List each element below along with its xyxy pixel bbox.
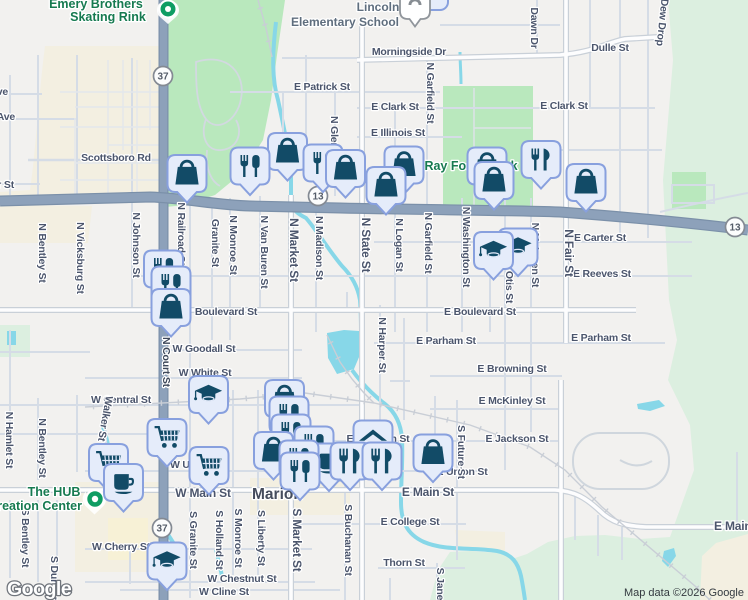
svg-text:Thorn St: Thorn St [383, 557, 425, 569]
svg-text:E Clark St: E Clark St [371, 101, 419, 113]
svg-text:Google: Google [7, 578, 72, 600]
svg-text:E Main St: E Main St [714, 519, 748, 533]
svg-text:Granite St: Granite St [209, 219, 221, 268]
svg-text:S Market St: S Market St [290, 508, 304, 571]
svg-text:Ave: Ave [0, 111, 15, 123]
svg-text:S Future St: S Future St [455, 425, 467, 480]
svg-text:E Clark St: E Clark St [540, 100, 588, 112]
svg-text:N Market St: N Market St [287, 218, 301, 282]
svg-text:N Monroe St: N Monroe St [227, 215, 239, 275]
svg-text:S Janet St: S Janet St [434, 568, 446, 600]
svg-text:E Carter St: E Carter St [574, 232, 627, 244]
svg-text:N Garfield St: N Garfield St [422, 213, 434, 275]
svg-text:W Central St: W Central St [91, 394, 152, 406]
svg-text:Dawn Dr: Dawn Dr [528, 7, 540, 48]
svg-text:N Harper St: N Harper St [376, 317, 388, 373]
svg-text:Morningside Dr: Morningside Dr [372, 46, 446, 58]
svg-text:W Chestnut St: W Chestnut St [207, 573, 277, 585]
svg-text:S Holland St: S Holland St [213, 510, 225, 570]
svg-text:E Main St: E Main St [402, 485, 454, 499]
svg-text:W Cline St: W Cline St [199, 586, 250, 598]
svg-text:Dulle St: Dulle St [591, 42, 629, 54]
svg-text:E Patrick St: E Patrick St [294, 81, 351, 93]
svg-text:S Bentley St: S Bentley St [19, 509, 31, 569]
svg-text:Map data ©2026 Google: Map data ©2026 Google [624, 587, 744, 599]
svg-text:37: 37 [156, 524, 168, 535]
svg-text:N Washington St: N Washington St [460, 207, 472, 288]
svg-text:S Granite St: S Granite St [187, 511, 199, 569]
svg-text:N Garfield St: N Garfield St [424, 63, 436, 125]
svg-text:W Goodall St: W Goodall St [173, 343, 237, 355]
svg-text:S Monroe St: S Monroe St [232, 508, 244, 568]
svg-text:N Vicksburg St: N Vicksburg St [74, 222, 86, 294]
svg-text:N Fair St: N Fair St [562, 229, 576, 277]
svg-text:E Illinois St: E Illinois St [371, 127, 426, 139]
svg-text:13: 13 [729, 223, 741, 234]
svg-text:N Van Buren St: N Van Buren St [258, 215, 270, 289]
svg-text:The HUB: The HUB [28, 485, 81, 499]
svg-text:S Buchanan St: S Buchanan St [342, 504, 354, 576]
svg-text:Boulevard St: Boulevard St [195, 306, 258, 318]
svg-text:13: 13 [312, 192, 324, 203]
svg-text:r St: r St [0, 179, 15, 191]
svg-text:Scottsboro Rd: Scottsboro Rd [81, 152, 151, 164]
svg-text:N State St: N State St [359, 218, 373, 273]
svg-text:E Parham St: E Parham St [571, 332, 631, 344]
svg-text:N Hamlet St: N Hamlet St [3, 412, 15, 469]
svg-text:37: 37 [157, 72, 169, 83]
svg-text:W Cherry St: W Cherry St [92, 541, 151, 553]
svg-text:E Reeves St: E Reeves St [573, 268, 632, 280]
svg-text:E McKinley St: E McKinley St [479, 395, 547, 407]
svg-text:N Madison St: N Madison St [313, 216, 325, 281]
svg-text:E Parham St: E Parham St [416, 335, 476, 347]
svg-text:Elementary School: Elementary School [291, 15, 399, 29]
svg-text:Lincoln: Lincoln [357, 0, 400, 14]
svg-text:N Johnson St: N Johnson St [130, 212, 142, 278]
svg-text:Recreation Center: Recreation Center [0, 499, 82, 513]
svg-text:N Logan St: N Logan St [393, 218, 405, 272]
svg-text:Ave: Ave [0, 86, 8, 98]
svg-text:N Bentley St: N Bentley St [36, 223, 48, 283]
svg-text:S Liberty St: S Liberty St [255, 510, 267, 567]
svg-text:E Browning St: E Browning St [477, 363, 547, 375]
svg-text:E Jackson St: E Jackson St [486, 433, 550, 445]
svg-text:N Bentley St: N Bentley St [36, 418, 48, 478]
svg-text:E College St: E College St [381, 516, 441, 528]
svg-text:Skating Rink: Skating Rink [70, 10, 146, 24]
svg-text:E Boulevard St: E Boulevard St [444, 306, 517, 318]
svg-text:N Court St: N Court St [160, 337, 172, 388]
